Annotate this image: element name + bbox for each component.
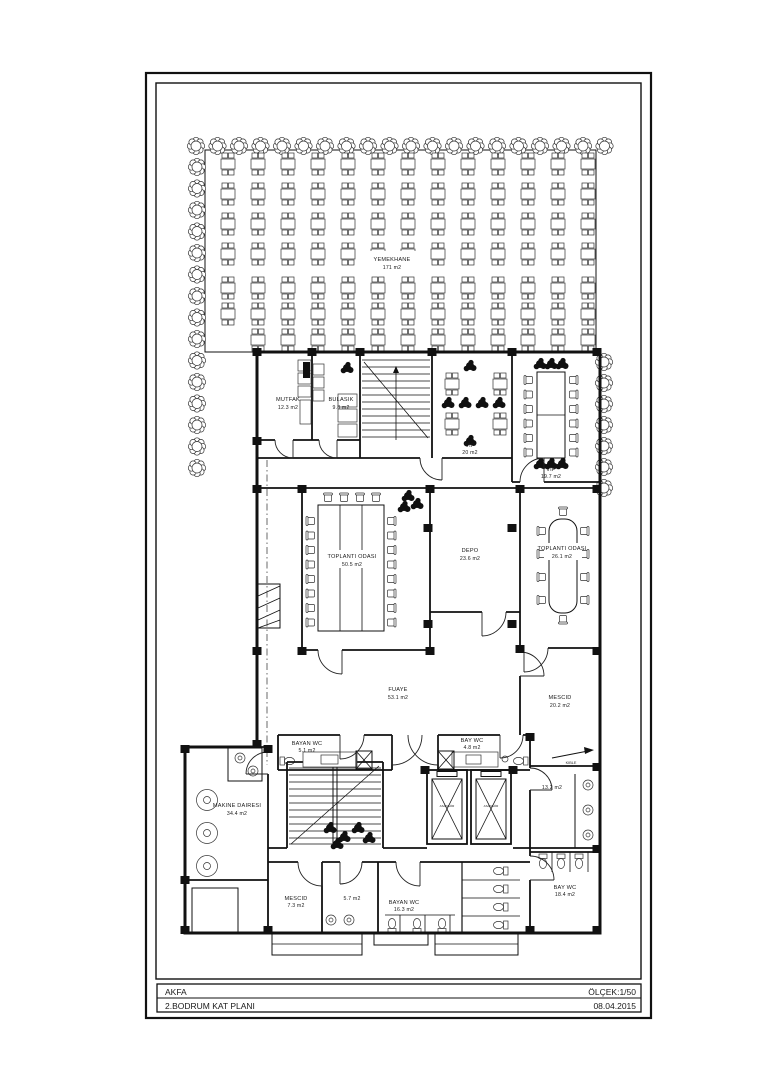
table4-symbol [221, 243, 235, 265]
tree-symbol [188, 330, 205, 347]
label-fuaye-name: FUAYE [388, 687, 407, 693]
staircase-lower [289, 763, 381, 847]
tree-symbol [595, 395, 612, 412]
table4-symbol [311, 243, 325, 265]
title-firm: AKFA [165, 987, 187, 997]
chair-symbol [306, 618, 315, 627]
chair-symbol [581, 596, 590, 605]
label-mutfak-name: MUTFAK [276, 397, 300, 403]
table4-symbol [431, 183, 445, 205]
toilet-symbol [494, 867, 509, 875]
elevator-1-label: ASANSÖR [440, 804, 456, 808]
table4-symbol [311, 329, 325, 351]
toilet-symbol [438, 919, 446, 934]
table4-symbol [581, 153, 595, 175]
tree-symbol [188, 158, 205, 175]
table4-symbol [341, 243, 355, 265]
table4-symbol [445, 373, 459, 395]
tree-symbol [188, 438, 205, 455]
table4-symbol [251, 153, 265, 175]
label-bayan-wc1-area: 5.1 m2 [298, 748, 315, 754]
chair-symbol [340, 493, 349, 502]
table4-symbol [281, 329, 295, 351]
table4-symbol [521, 243, 535, 265]
darkplant-symbol [493, 397, 506, 408]
structural-column [593, 485, 602, 493]
chair-symbol [581, 573, 590, 582]
table4-symbol [521, 277, 535, 299]
table4-symbol [281, 243, 295, 265]
chair-symbol [570, 376, 579, 385]
tree-symbol [188, 287, 205, 304]
table4-symbol [251, 329, 265, 351]
structural-column [526, 926, 535, 934]
label-bay-wc1-area: 4.8 m2 [463, 745, 480, 751]
title-drawing: 2.BODRUM KAT PLANI [165, 1001, 255, 1011]
tree-symbol [188, 416, 205, 433]
label-bulasik-area: 9.8 m2 [332, 405, 349, 411]
table4-symbol [281, 213, 295, 235]
structural-column [253, 348, 262, 356]
tree-symbol [188, 309, 205, 326]
structural-column [526, 733, 535, 741]
structural-column [308, 348, 317, 356]
table4-symbol [401, 153, 415, 175]
table4-symbol [341, 277, 355, 299]
chair-symbol [537, 573, 546, 582]
table4-symbol [311, 153, 325, 175]
table4-symbol [491, 243, 505, 265]
table4-symbol [281, 303, 295, 325]
tree-symbol [188, 223, 205, 240]
table4-symbol [461, 329, 475, 351]
chair-symbol [524, 405, 533, 414]
chair-symbol [306, 560, 315, 569]
structural-column [593, 845, 602, 853]
table4-symbol [311, 213, 325, 235]
structural-column [593, 647, 602, 655]
structural-column [593, 348, 602, 356]
tree-symbol [595, 374, 612, 391]
table4-symbol [341, 153, 355, 175]
tree-symbol [596, 137, 613, 154]
machine-symbol [197, 856, 218, 877]
darkplant-symbol [402, 490, 415, 501]
tree-symbol [188, 180, 205, 197]
chair-symbol [570, 390, 579, 399]
structural-column [253, 437, 262, 445]
toilet-symbol [413, 919, 421, 934]
table4-symbol [281, 277, 295, 299]
label-bay-wc1-name: BAY WC [461, 738, 484, 744]
table4-symbol [311, 303, 325, 325]
chair-symbol [388, 560, 397, 569]
table4-symbol [461, 277, 475, 299]
table4-symbol [431, 329, 445, 351]
chair-symbol [306, 531, 315, 540]
toilet-symbol [494, 885, 509, 893]
table4-symbol [371, 213, 385, 235]
table4-symbol [521, 183, 535, 205]
structural-column [508, 524, 517, 532]
toilet-symbol [514, 757, 529, 765]
elevator-2-label: ASANSÖR [484, 804, 500, 808]
sinkc-symbol [583, 805, 593, 815]
table4-symbol [491, 303, 505, 325]
structural-column [181, 745, 190, 753]
label-bulasik-name: BULASIK [328, 397, 353, 403]
structural-column [181, 876, 190, 884]
tree-symbol [531, 137, 548, 154]
label-toplanti2-name: TOPLANTI ODASI [537, 546, 586, 552]
chair-symbol [570, 405, 579, 414]
tree-symbol [188, 244, 205, 261]
sinkc-symbol [248, 766, 258, 776]
structural-column [181, 926, 190, 934]
table4-symbol [401, 183, 415, 205]
darkplant-symbol [556, 458, 569, 469]
tree-symbol [188, 352, 205, 369]
sinkc-symbol [583, 830, 593, 840]
chair-symbol [524, 448, 533, 457]
table4-symbol [551, 329, 565, 351]
kible-label: KIBLE [566, 761, 577, 765]
tree-symbol [295, 137, 312, 154]
chair-symbol [306, 575, 315, 584]
structural-column [424, 620, 433, 628]
darkplant-symbol [534, 358, 547, 369]
label-depo-area: 23.6 m2 [460, 556, 480, 562]
title-block: AKFA ÖLÇEK:1/50 2.BODRUM KAT PLANI 08.04… [157, 984, 641, 1012]
table4-symbol [551, 303, 565, 325]
chair-symbol [581, 527, 590, 536]
chair-symbol [388, 531, 397, 540]
label-bay-wc2-name: BAY WC [554, 885, 577, 891]
structural-column [298, 647, 307, 655]
tree-symbol [595, 416, 612, 433]
table4-symbol [581, 329, 595, 351]
table4-symbol [461, 183, 475, 205]
chair-symbol [524, 419, 533, 428]
label-yemekhane-name: YEMEKHANE [374, 257, 411, 263]
chair-symbol [559, 616, 568, 625]
tree-symbol [424, 137, 441, 154]
tree-symbol [187, 137, 204, 154]
label-yemekhane-area: 171 m2 [383, 265, 402, 271]
table4-symbol [491, 153, 505, 175]
table4-symbol [431, 213, 445, 235]
chair-symbol [559, 507, 568, 516]
tree-symbol [316, 137, 333, 154]
darkplant-symbol [545, 358, 558, 369]
label-mescid2-area: 7.3 m2 [287, 903, 304, 909]
table4-symbol [311, 277, 325, 299]
shaft-hatch [258, 584, 280, 628]
exterior-walls [185, 352, 600, 933]
table4-symbol [251, 243, 265, 265]
chair-symbol [388, 604, 397, 613]
drawing-sheet: ASANSÖR ASANSÖR [0, 0, 763, 1080]
structural-column [253, 740, 262, 748]
toilet-symbol [539, 854, 547, 869]
structural-column [253, 485, 262, 493]
table4-symbol [401, 303, 415, 325]
structural-column [253, 647, 262, 655]
structural-column [264, 926, 273, 934]
table4-symbol [431, 243, 445, 265]
table4-symbol [551, 183, 565, 205]
structural-column [516, 485, 525, 493]
label-vip1-name: VIP [465, 443, 475, 449]
table4-symbol [461, 213, 475, 235]
table4-symbol [521, 303, 535, 325]
table4-symbol [581, 303, 595, 325]
stall-partitions [192, 774, 588, 933]
structural-column [264, 745, 273, 753]
table4-symbol [431, 303, 445, 325]
elevator-1: ASANSÖR [427, 770, 467, 844]
chair-symbol [388, 546, 397, 555]
chair-symbol [570, 448, 579, 457]
chair-symbol [324, 493, 333, 502]
table4-symbol [493, 373, 507, 395]
tree-symbol [595, 437, 612, 454]
tree-symbol [359, 137, 376, 154]
table4-symbol [491, 277, 505, 299]
chair-symbol [537, 596, 546, 605]
chair-symbol [524, 390, 533, 399]
structural-column [421, 766, 430, 774]
chair-symbol [306, 517, 315, 526]
table4-symbol [251, 277, 265, 299]
table4-symbol [221, 303, 235, 325]
sinkc-symbol [344, 915, 354, 925]
chair-symbol [388, 575, 397, 584]
structural-column [508, 620, 517, 628]
tree-symbol [338, 137, 355, 154]
chair-symbol [524, 376, 533, 385]
table4-symbol [311, 183, 325, 205]
chair-symbol [306, 546, 315, 555]
table4-symbol [371, 329, 385, 351]
label-toplanti2-area: 26.1 m2 [552, 554, 572, 560]
table4-symbol [551, 153, 565, 175]
label-bayan-wc1-name: BAYAN WC [292, 741, 323, 747]
structural-column [426, 485, 435, 493]
tree-symbol [252, 137, 269, 154]
table4-symbol [221, 153, 235, 175]
window-wells [272, 933, 518, 955]
tree-symbol [595, 458, 612, 475]
label-makine-area: 34.4 m2 [227, 811, 247, 817]
chair-symbol [306, 589, 315, 598]
table4-symbol [221, 213, 235, 235]
table4-symbol [551, 277, 565, 299]
tree-symbol [209, 137, 226, 154]
label-mescid1-name: MESCID [549, 695, 572, 701]
structural-column [298, 485, 307, 493]
darkplant-symbol [464, 360, 477, 371]
table4-symbol [281, 153, 295, 175]
title-scale: ÖLÇEK:1/50 [588, 987, 636, 997]
chair-symbol [537, 527, 546, 536]
sinkc-symbol [583, 780, 593, 790]
table4-symbol [221, 277, 235, 299]
columns-layer [181, 348, 602, 934]
table4-symbol [551, 213, 565, 235]
structural-column [509, 766, 518, 774]
table4-symbol [521, 153, 535, 175]
table4-symbol [401, 329, 415, 351]
label-vip2-area: 19.7 m2 [541, 474, 561, 480]
tree-symbol [188, 201, 205, 218]
label-bayan-wc2-area: 16.3 m2 [394, 907, 414, 913]
table4-symbol [491, 329, 505, 351]
structural-column [516, 645, 525, 653]
tree-symbol [188, 395, 205, 412]
darkplant-symbol [341, 362, 354, 373]
table4-symbol [551, 243, 565, 265]
elevator-2: ASANSÖR [471, 770, 511, 844]
table4-symbol [461, 153, 475, 175]
label-mutfak-area: 12.3 m2 [278, 405, 298, 411]
machine-symbol [197, 823, 218, 844]
darkplant-symbol [476, 397, 489, 408]
label-vip1-area: 20 m2 [462, 450, 477, 456]
toilet-symbol [575, 854, 583, 869]
table4-symbol [581, 213, 595, 235]
table4-symbol [431, 153, 445, 175]
table4-symbol [341, 329, 355, 351]
table4-symbol [491, 213, 505, 235]
table4-symbol [581, 243, 595, 265]
table4-symbol [521, 329, 535, 351]
chair-symbol [524, 434, 533, 443]
tree-symbol [188, 459, 205, 476]
table4-symbol [281, 183, 295, 205]
label-vip2-name: VIP [546, 467, 556, 473]
chair-symbol [356, 493, 365, 502]
table4-symbol [251, 213, 265, 235]
table4-symbol [401, 213, 415, 235]
tree-symbol [188, 266, 205, 283]
table4-symbol [221, 183, 235, 205]
table4-symbol [491, 183, 505, 205]
toilet-symbol [494, 921, 509, 929]
table4-symbol [251, 183, 265, 205]
table4-symbol [445, 413, 459, 435]
table4-symbol [461, 303, 475, 325]
staircase-upper [362, 360, 430, 440]
tree-symbol [273, 137, 290, 154]
toilet-symbol [388, 919, 396, 934]
darkplant-symbol [459, 397, 472, 408]
label-depo-name: DEPO [462, 548, 479, 554]
tree-symbol [510, 137, 527, 154]
sinkc-symbol [326, 915, 336, 925]
darkplant-symbol [556, 358, 569, 369]
toilet-symbol [494, 903, 509, 911]
structural-column [424, 524, 433, 532]
label-toplanti1-name: TOPLANTI ODASI [327, 554, 376, 560]
tree-symbol [467, 137, 484, 154]
label-bay-wc2-area: 18.4 m2 [555, 892, 575, 898]
structural-column [356, 348, 365, 356]
tree-symbol [574, 137, 591, 154]
chair-symbol [388, 517, 397, 526]
table4-symbol [401, 277, 415, 299]
table4-symbol [581, 277, 595, 299]
sinkc-symbol [235, 753, 245, 763]
table4-symbol [341, 183, 355, 205]
interior-walls [185, 352, 600, 933]
title-date: 08.04.2015 [593, 1001, 636, 1011]
chair-symbol [372, 493, 381, 502]
label-fuaye-area: 53.1 m2 [388, 695, 408, 701]
table4-symbol [461, 243, 475, 265]
label-mescid1-area: 20.2 m2 [550, 703, 570, 709]
floor-plan-drawing: ASANSÖR ASANSÖR [0, 0, 763, 1080]
chair-symbol [388, 618, 397, 627]
table4-symbol [341, 303, 355, 325]
darkplant-symbol [442, 397, 455, 408]
table4-symbol [371, 183, 385, 205]
chair-symbol [570, 419, 579, 428]
chair-symbol [306, 604, 315, 613]
tree-symbol [381, 137, 398, 154]
table4-symbol [371, 153, 385, 175]
table4-symbol [493, 413, 507, 435]
tree-symbol [230, 137, 247, 154]
label-mescid2-name: MESCID [285, 896, 308, 902]
label-toplanti1-area: 50.5 m2 [342, 562, 362, 568]
chair-symbol [570, 434, 579, 443]
tree-symbol [188, 373, 205, 390]
table4-symbol [371, 303, 385, 325]
tree-symbol [402, 137, 419, 154]
chair-symbol [388, 589, 397, 598]
label-bayan-wc2-name: BAYAN WC [389, 900, 420, 906]
label-oda132-area: 13.2 m2 [542, 785, 562, 791]
table4-symbol [371, 277, 385, 299]
toilet-symbol [557, 854, 565, 869]
label-oda57-area: 5.7 m2 [343, 896, 360, 902]
label-makine-name: MAKINE DAIRESI [213, 803, 261, 809]
structural-column [508, 348, 517, 356]
tree-symbol [488, 137, 505, 154]
table4-symbol [521, 213, 535, 235]
darkplant-symbol [398, 501, 411, 512]
structural-column [593, 926, 602, 934]
structural-column [593, 763, 602, 771]
structural-column [428, 348, 437, 356]
tree-symbol [553, 137, 570, 154]
qibla-arrow: KIBLE [552, 747, 594, 765]
tree-symbol [445, 137, 462, 154]
structural-column [426, 647, 435, 655]
table4-symbol [431, 277, 445, 299]
table4-symbol [251, 303, 265, 325]
table4-symbol [341, 213, 355, 235]
table4-symbol [581, 183, 595, 205]
